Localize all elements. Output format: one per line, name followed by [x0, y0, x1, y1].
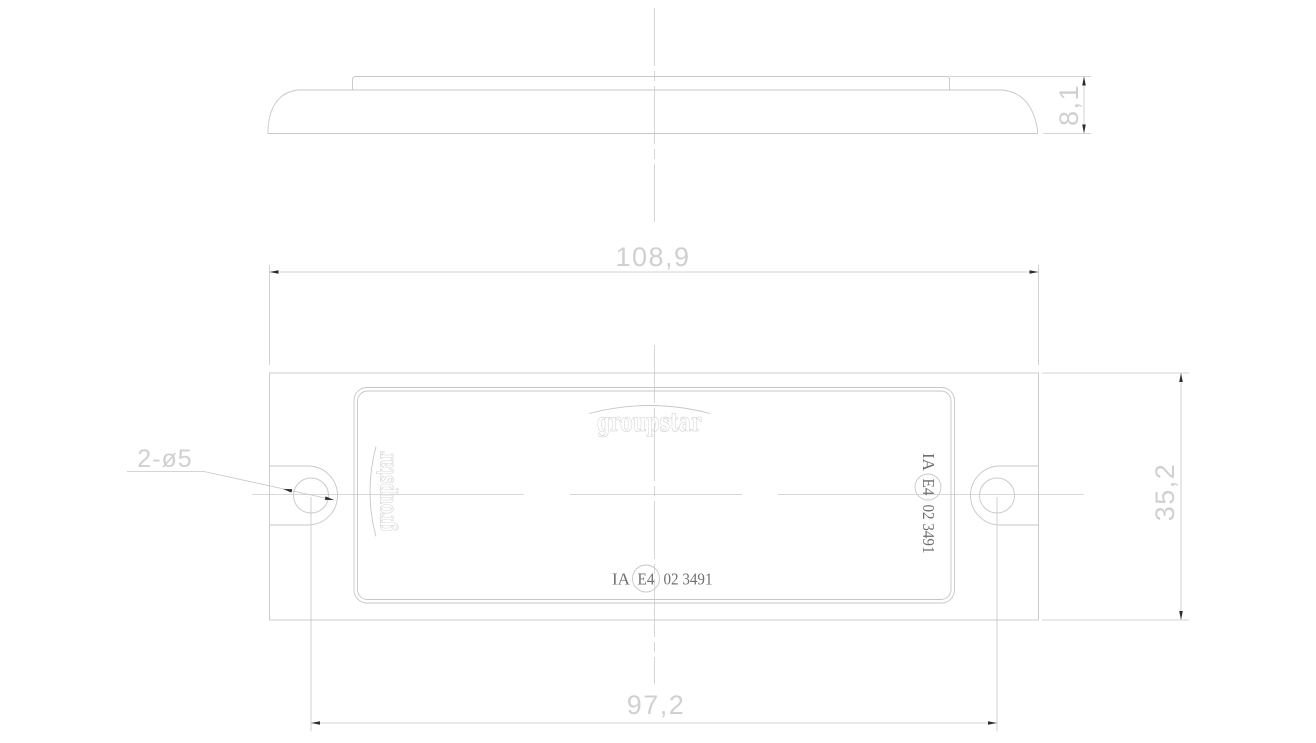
arrowhead-right	[988, 721, 997, 725]
approval-suffix: 02 3491	[664, 570, 713, 589]
leader-arrowhead-left	[283, 487, 293, 492]
dim-profile-height: 8,1	[950, 77, 1092, 134]
dim-text-overall-width: 108,9	[615, 242, 690, 272]
approval-circled: E4	[919, 479, 938, 496]
left-mounting-ear	[270, 466, 338, 525]
brand-logo-center: groupstar	[589, 406, 710, 439]
right-mounting-ear	[970, 466, 1038, 525]
arrowhead-left	[270, 270, 279, 274]
brand-logo-left: groupstar	[370, 447, 399, 537]
approval-suffix: 02 3491	[919, 505, 938, 554]
dim-overall-width: 108,9	[270, 242, 1039, 365]
arrowhead-down	[1179, 611, 1183, 620]
arrowhead-left	[311, 721, 320, 725]
brand-logo-text: groupstar	[370, 451, 399, 531]
dim-text-overall-height: 35,2	[1150, 463, 1180, 522]
approval-mark-side: IA E4 02 3491	[915, 453, 941, 554]
callout-mounting-holes: 2-ø5	[127, 445, 334, 502]
approval-mark-bottom: IA E4 02 3491	[612, 565, 713, 592]
brand-logo-text: groupstar	[597, 408, 701, 438]
top-view	[268, 8, 1038, 227]
dim-text-hole-spacing: 97,2	[627, 690, 686, 720]
approval-circled: E4	[638, 570, 655, 589]
dim-overall-height: 35,2	[1042, 373, 1189, 620]
profile-lens-lip	[353, 77, 950, 91]
leader-line	[204, 472, 334, 501]
approval-prefix: IA	[612, 570, 631, 589]
arrowhead-up	[1179, 373, 1183, 382]
dim-text-profile-height: 8,1	[1054, 84, 1084, 126]
profile-outline	[268, 90, 1038, 134]
dim-hole-spacing: 97,2	[311, 690, 997, 725]
callout-text-hole-diameter: 2-ø5	[137, 445, 192, 473]
approval-prefix: IA	[919, 453, 938, 472]
engineering-drawing-canvas: 8,1 groupstar groupstar IA E4	[0, 0, 1316, 743]
leader-arrowhead-right	[325, 496, 335, 501]
front-view: groupstar groupstar IA E4 02 3491 IA E4 …	[252, 345, 1084, 732]
arrowhead-right	[1030, 270, 1039, 274]
